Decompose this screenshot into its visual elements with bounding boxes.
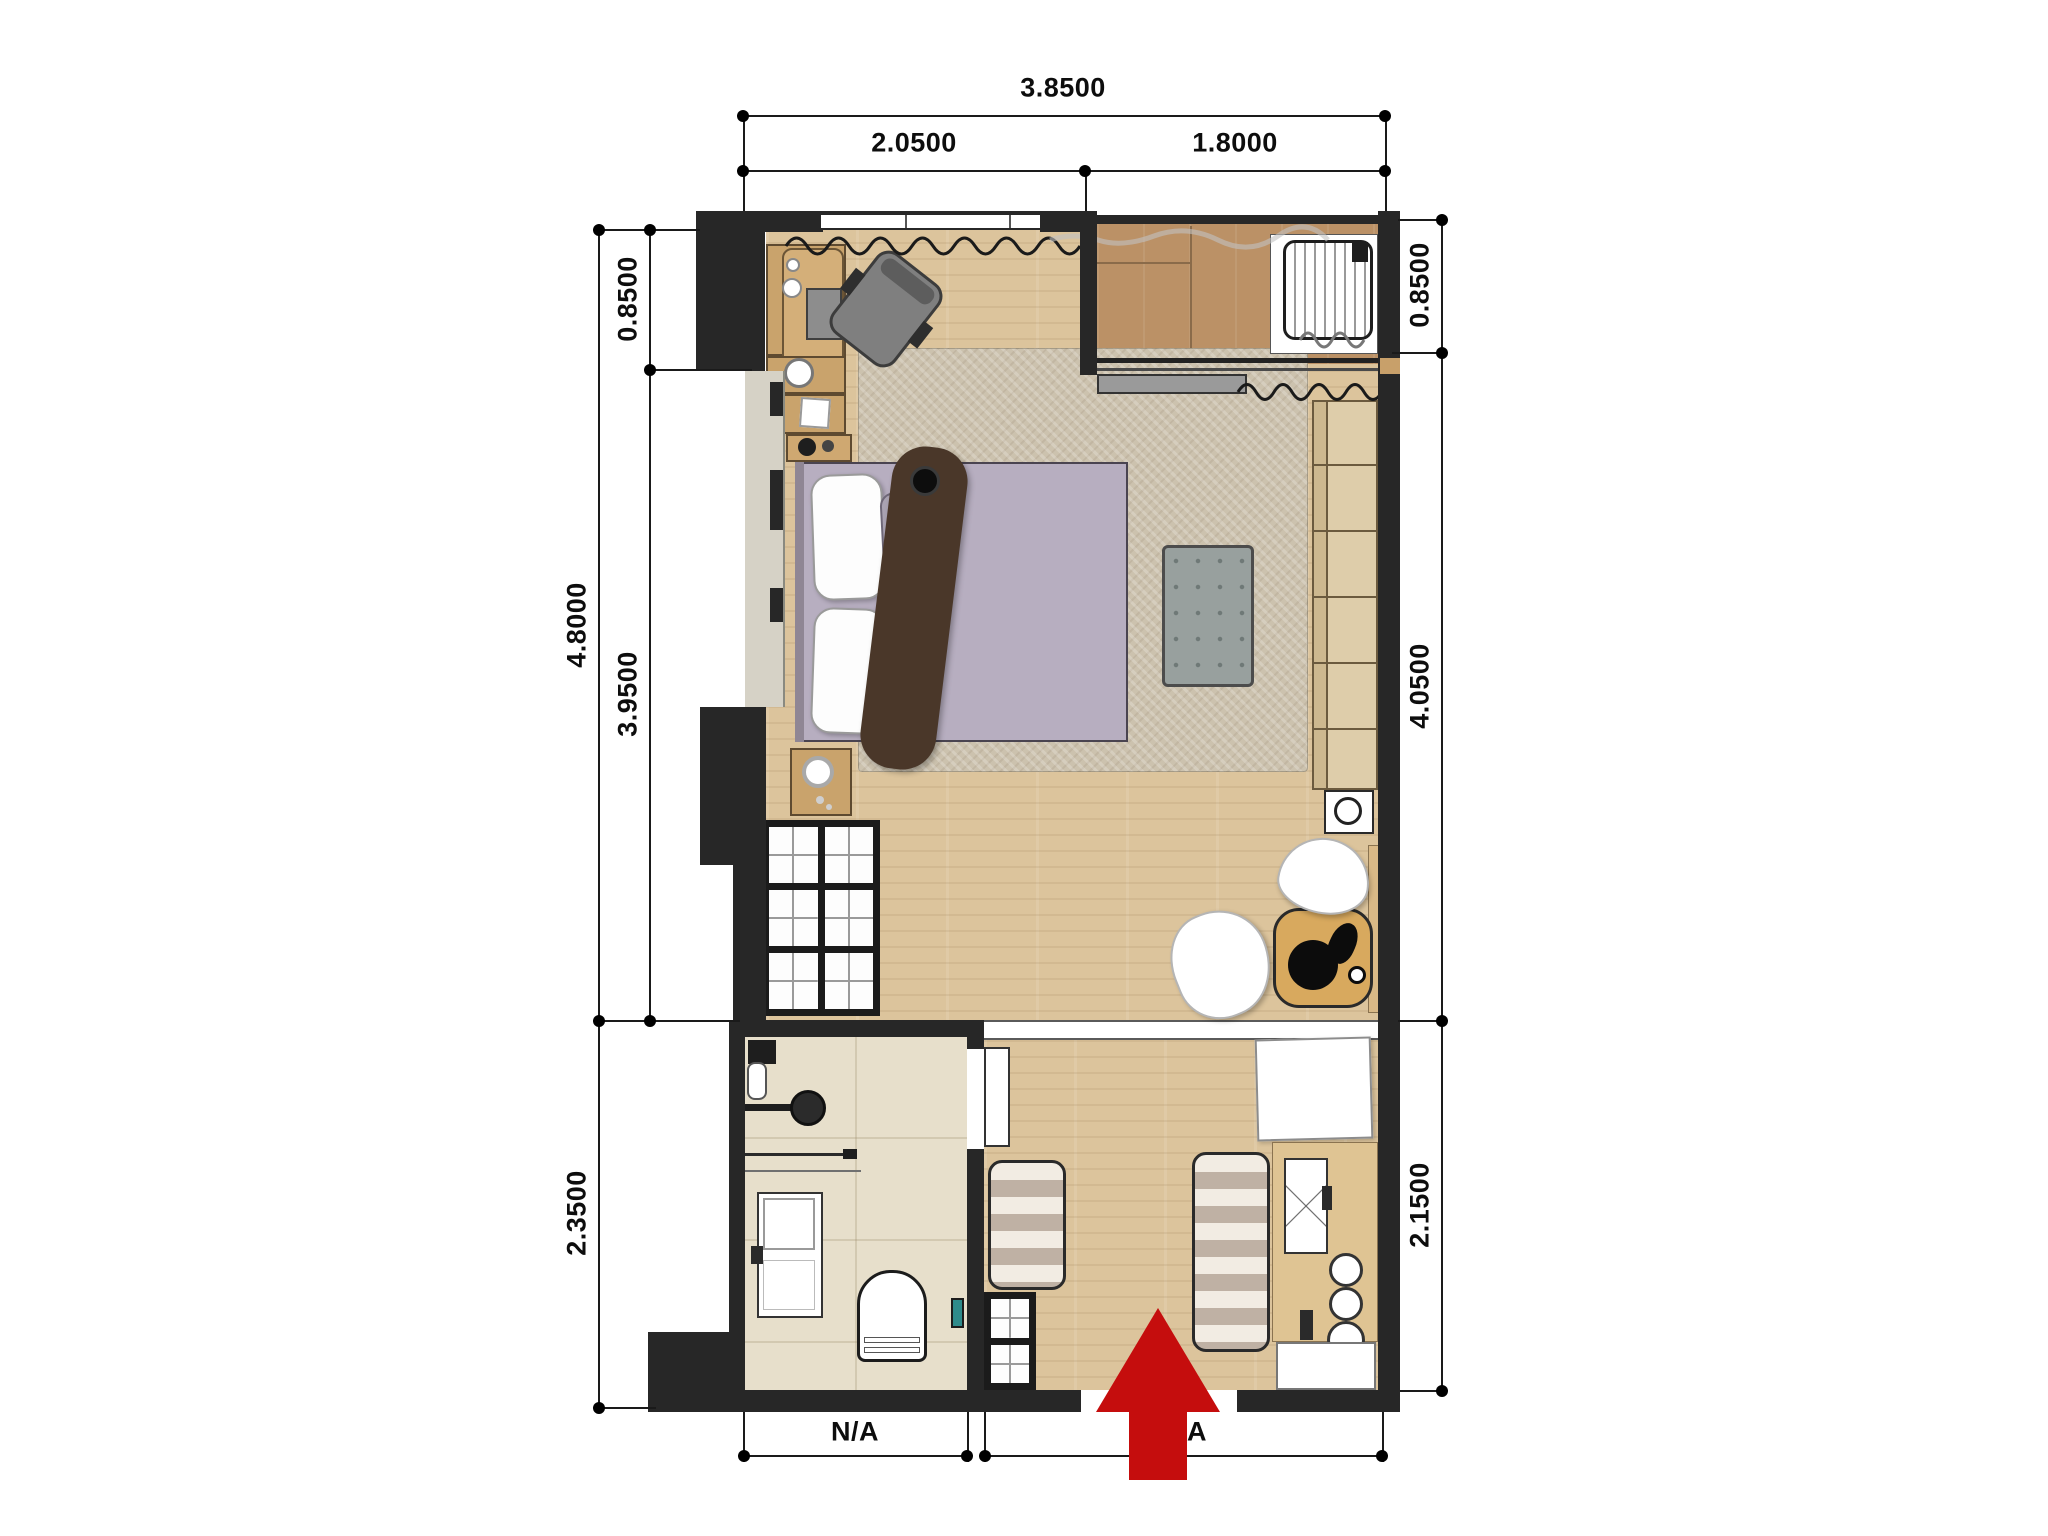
table-cup <box>1348 966 1366 984</box>
storage-cell <box>769 953 818 1009</box>
wardrobe-shelf-line <box>1314 464 1376 466</box>
pillow-white-top <box>810 473 886 601</box>
decor-dot-1 <box>816 796 824 804</box>
dim-label-right-upper: 0.8500 <box>1405 242 1436 328</box>
dim-dot <box>1436 214 1448 226</box>
decor-dot-2 <box>826 804 832 810</box>
dim-dot <box>1436 1015 1448 1027</box>
kettle <box>784 358 814 388</box>
storage-cell <box>991 1299 1029 1338</box>
dim-dot <box>1436 347 1448 359</box>
dim-dot <box>644 364 656 376</box>
vanity-faucet <box>751 1246 763 1264</box>
sliding-door-panel <box>1097 374 1247 394</box>
wall-left-lower-strip <box>733 865 766 1020</box>
wardrobe-side-panel <box>1314 402 1328 788</box>
wall-top-left-segment <box>765 211 823 232</box>
desk-accessory-small <box>786 258 800 272</box>
dim-dot <box>737 110 749 122</box>
wall-right <box>1378 211 1400 1412</box>
dim-conn-left-4 <box>598 1407 656 1409</box>
bed-tray-disc <box>910 466 940 496</box>
dim-conn-right-1 <box>1398 219 1441 221</box>
toilet-seat-line-1 <box>864 1337 920 1343</box>
nightstand-top <box>786 434 852 462</box>
dim-dot <box>1379 110 1391 122</box>
dim-label-left-upper: 0.8500 <box>613 256 644 342</box>
wall-bathroom-top <box>743 1020 984 1037</box>
ac-junction-box <box>1352 242 1368 262</box>
vanity-basin <box>763 1198 815 1250</box>
dim-dot <box>1079 165 1091 177</box>
dim-conn-right-4 <box>1400 1390 1441 1392</box>
shower-glass-handle <box>843 1149 857 1159</box>
dim-conn-right-2 <box>1392 352 1441 354</box>
wall-balcony-edge <box>1097 215 1380 224</box>
dim-line-top-segments <box>743 170 1385 172</box>
nightstand-item <box>822 440 834 452</box>
dim-line-left-inner <box>649 229 651 1020</box>
shower-control <box>748 1040 776 1064</box>
ottoman-bench <box>1162 545 1254 687</box>
dim-dot <box>738 1450 750 1462</box>
entry-cross-cabinet <box>984 1292 1036 1390</box>
nightstand-lamp-black <box>798 438 816 456</box>
dim-label-top-left-segment: 2.0500 <box>871 128 957 159</box>
shower-glass-panel-1 <box>745 1153 851 1156</box>
bed-headboard <box>795 462 804 742</box>
storage-cabinet-grid <box>762 820 880 1016</box>
shower-glass-panel-2 <box>745 1170 861 1172</box>
wall-column-mid-left <box>700 707 766 865</box>
dim-dot <box>1379 165 1391 177</box>
wall-column-top-left <box>696 211 765 371</box>
storage-cell <box>825 890 874 946</box>
wall-left-tab-3 <box>770 588 783 622</box>
waste-bin <box>1300 1310 1313 1340</box>
wall-right-wood-notch <box>1380 358 1400 374</box>
top-window <box>821 211 1041 230</box>
wardrobe-shelf-line <box>1314 728 1376 730</box>
wall-left-tab-1 <box>770 382 783 416</box>
dim-dot <box>961 1450 973 1462</box>
balcony-floor-seam-h <box>1097 262 1192 264</box>
cabinet-notepad <box>799 397 831 429</box>
dim-conn-right-3 <box>1398 1020 1441 1022</box>
dim-line-right <box>1441 219 1443 1390</box>
wall-bathroom-right-stub <box>967 1037 984 1049</box>
toilet-seat-line-2 <box>864 1347 920 1353</box>
dim-dot <box>1436 1385 1448 1397</box>
wall-balcony-partition <box>1080 211 1097 375</box>
dim-label-left-middle: 3.9500 <box>613 651 644 737</box>
dim-line-bottom-left <box>743 1455 967 1457</box>
wall-left-upper-light <box>745 371 785 707</box>
window-mullion-1 <box>905 215 907 228</box>
dim-ext-top-right <box>1385 115 1387 211</box>
table-lamp <box>802 756 834 788</box>
window-mullion-2 <box>1009 215 1011 228</box>
dim-line-left-outer <box>598 229 600 1407</box>
stool-stack-1 <box>1329 1253 1363 1287</box>
dim-label-right-lower: 2.1500 <box>1405 1162 1436 1248</box>
wall-bottom <box>648 1390 1390 1412</box>
dim-conn-left-3 <box>598 1020 740 1022</box>
storage-cell <box>769 827 818 883</box>
dim-label-top-total: 3.8500 <box>1020 73 1106 104</box>
dim-dot <box>593 224 605 236</box>
dim-dot <box>979 1450 991 1462</box>
wall-bathroom-right <box>967 1149 984 1390</box>
dim-label-top-right-segment: 1.8000 <box>1192 128 1278 159</box>
sliding-door-rail-1 <box>1097 358 1378 363</box>
dim-label-bottom-left: N/A <box>831 1417 879 1448</box>
dim-dot <box>593 1402 605 1414</box>
dim-dot <box>593 1015 605 1027</box>
entry-mat-left <box>988 1160 1066 1290</box>
wardrobe-shelf-line <box>1314 530 1376 532</box>
dim-ext-top-left <box>743 115 745 211</box>
dim-label-left-overall: 4.8000 <box>562 582 593 668</box>
dim-label-right-middle: 4.0500 <box>1405 643 1436 729</box>
dim-dot <box>737 165 749 177</box>
storage-cell <box>825 827 874 883</box>
bathroom-door-leaf <box>984 1047 1010 1147</box>
mini-sink-basin <box>1334 797 1362 825</box>
wall-left-tab-2 <box>770 470 783 530</box>
dim-dot <box>1376 1450 1388 1462</box>
entry-white-cabinet <box>1255 1036 1374 1141</box>
dim-line-top-total <box>743 115 1385 117</box>
entry-mat-right <box>1192 1152 1270 1352</box>
dim-dot <box>644 1015 656 1027</box>
storage-cell <box>769 890 818 946</box>
floor-plan: 3.8500 2.0500 1.8000 4.8000 0.8500 3.950… <box>0 0 2048 1536</box>
toilet-brush-holder <box>951 1298 964 1328</box>
wardrobe <box>1312 400 1378 790</box>
sliding-door-rail-2 <box>1097 368 1378 371</box>
entrance-arrow-shaft <box>1129 1410 1187 1480</box>
desk-accessory-large <box>782 278 802 298</box>
balcony-floor-seam-v <box>1190 226 1192 362</box>
entry-sink-faucet <box>1322 1186 1332 1210</box>
stool-stack-2 <box>1329 1287 1363 1321</box>
shower-shelf <box>747 1062 767 1100</box>
storage-cell <box>825 953 874 1009</box>
wardrobe-shelf-line <box>1314 662 1376 664</box>
entry-bench <box>1276 1342 1376 1390</box>
bathroom-vanity <box>757 1192 823 1318</box>
toilet <box>857 1270 927 1362</box>
vanity-counter <box>763 1260 815 1310</box>
shower-head <box>790 1090 826 1126</box>
wardrobe-shelf-line <box>1314 596 1376 598</box>
dim-dot <box>644 224 656 236</box>
storage-cell <box>991 1345 1029 1384</box>
dim-label-left-lower: 2.3500 <box>562 1170 593 1256</box>
dim-conn-left-2 <box>649 369 752 371</box>
